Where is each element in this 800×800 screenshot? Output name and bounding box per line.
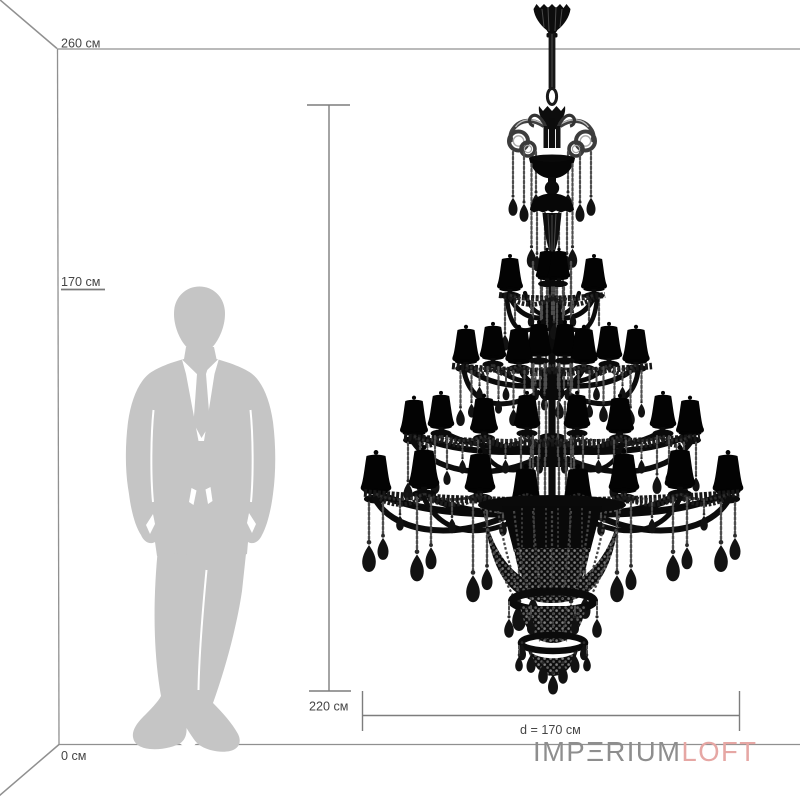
svg-text:d = 170 см: d = 170 см: [520, 723, 581, 737]
svg-text:IMPΞRIUMLOFT: IMPΞRIUMLOFT: [533, 736, 758, 767]
svg-text:260 см: 260 см: [61, 37, 100, 51]
svg-text:0 см: 0 см: [61, 749, 86, 763]
svg-text:170 см: 170 см: [61, 275, 100, 289]
svg-text:220 см: 220 см: [309, 700, 348, 714]
